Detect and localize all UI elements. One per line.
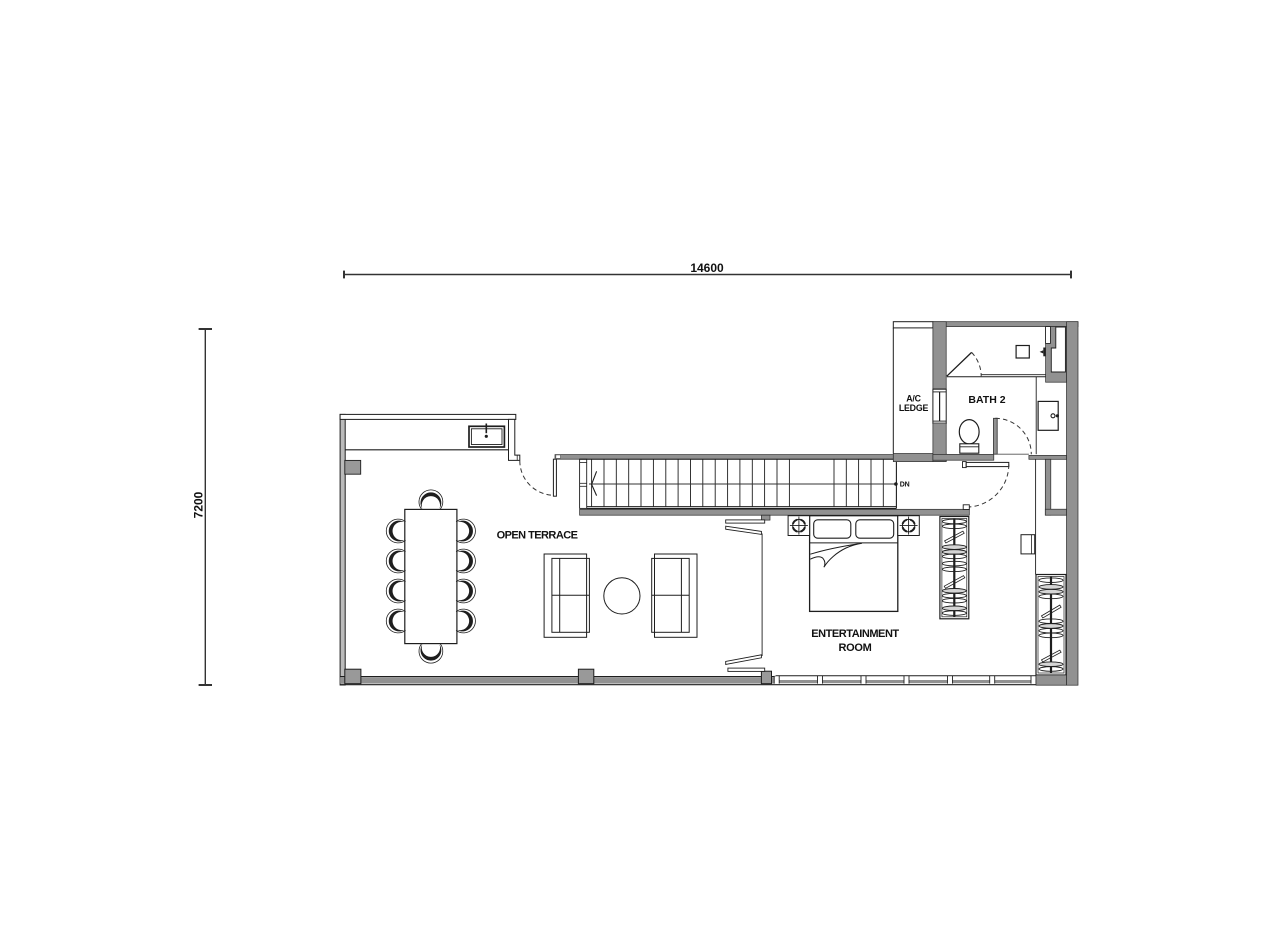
svg-text:7200: 7200 — [191, 491, 205, 518]
svg-text:ENTERTAINMENT: ENTERTAINMENT — [811, 628, 899, 640]
svg-text:14600: 14600 — [690, 261, 724, 275]
svg-text:DN: DN — [900, 482, 910, 489]
svg-text:A/C: A/C — [906, 393, 921, 403]
svg-text:BATH 2: BATH 2 — [968, 394, 1005, 406]
svg-text:OPEN TERRACE: OPEN TERRACE — [497, 530, 578, 542]
svg-text:ROOM: ROOM — [838, 642, 871, 654]
svg-text:LEDGE: LEDGE — [899, 403, 929, 413]
